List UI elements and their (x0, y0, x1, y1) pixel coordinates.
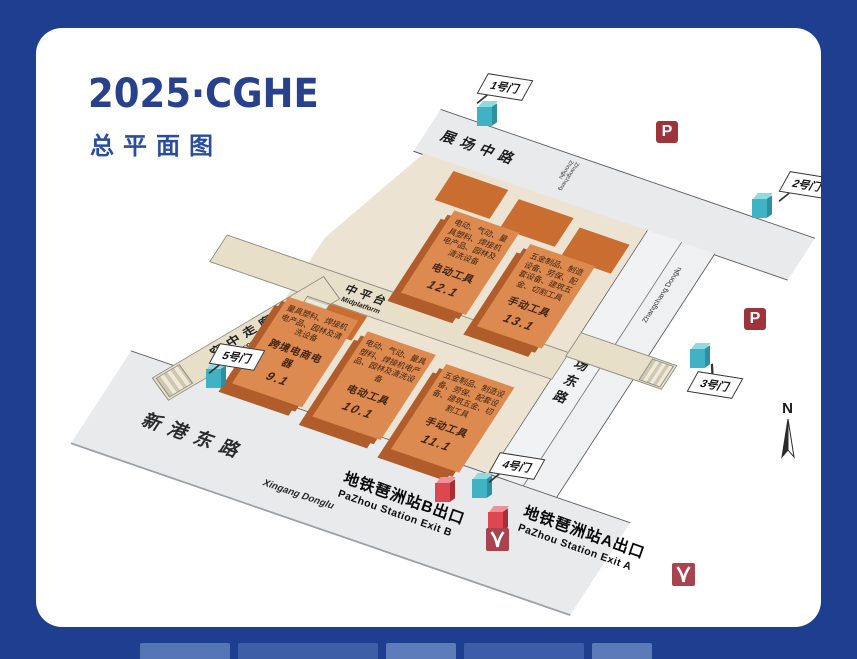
parking-icon: P (744, 308, 766, 330)
gate-3-sign: 3号门 (687, 371, 744, 399)
gate-2-sign: 2号门 (779, 171, 821, 199)
gate-4-sign: 4号门 (489, 452, 546, 480)
gate-3-marker (690, 342, 705, 368)
gate-1-marker (477, 100, 492, 126)
parking-icon: P (656, 121, 678, 143)
gate-1-sign: 1号门 (477, 73, 534, 101)
gate-2-marker (752, 192, 767, 218)
metro-logo-icon (672, 563, 695, 586)
map-overlay: 1号门 2号门 3号门 4号门 5号门 P P 地铁琶洲站B出口 PaZhou … (36, 28, 821, 627)
gate-4-marker (472, 472, 487, 498)
metro-logo-icon (486, 528, 509, 551)
background-photo-strip (0, 643, 857, 659)
gate-5-sign: 5号门 (209, 343, 266, 371)
metro-exit-marker (488, 505, 503, 528)
north-compass: N (778, 400, 798, 468)
page-frame: 2025·CGHE 总平面图 展场中路 Zhangchang Zhonglu 展… (0, 0, 857, 659)
map-card: 2025·CGHE 总平面图 展场中路 Zhangchang Zhonglu 展… (36, 28, 821, 627)
compass-needle-icon (778, 417, 798, 463)
north-label: N (778, 400, 798, 417)
metro-exit-a-label: 地铁琶洲站A出口 PaZhou Station Exit A (516, 500, 648, 576)
